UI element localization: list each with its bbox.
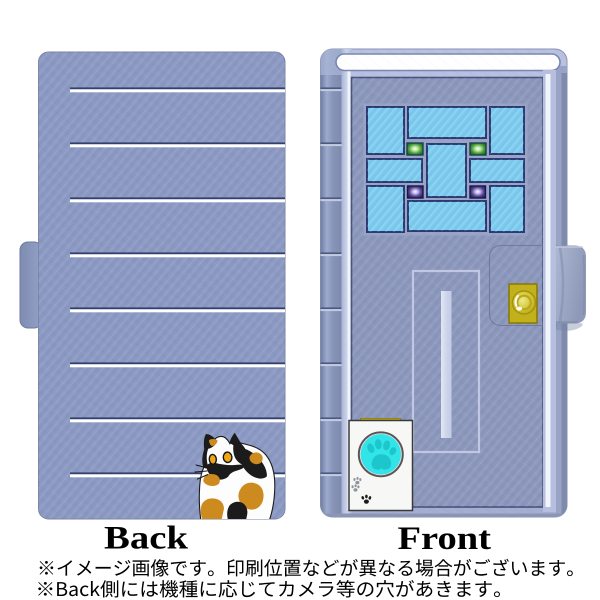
- svg-text:Back: Back: [104, 521, 189, 557]
- svg-text:Front: Front: [398, 521, 492, 557]
